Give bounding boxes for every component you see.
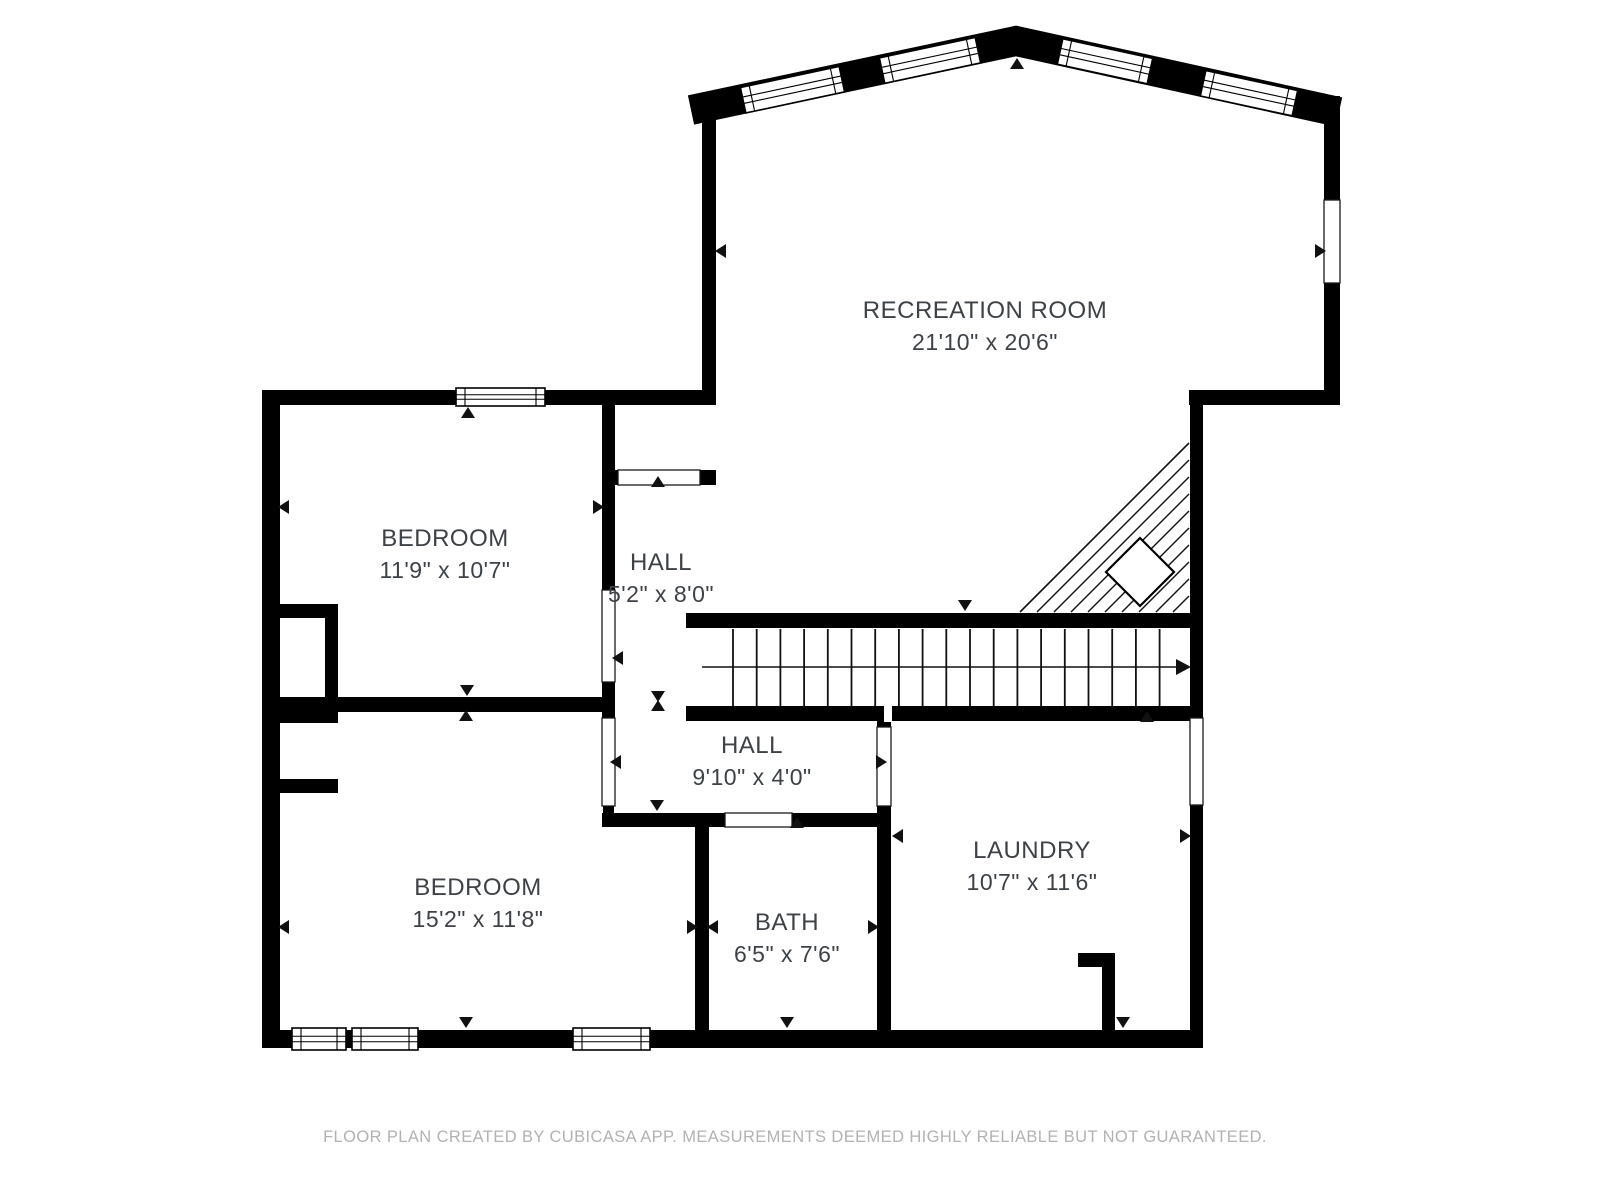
window-frame	[573, 1028, 650, 1050]
window	[292, 1028, 346, 1050]
measure-arrow	[1180, 829, 1191, 843]
window	[456, 388, 545, 406]
wall-recroom-left	[702, 96, 716, 405]
wall-bath-top-right	[792, 813, 891, 827]
window-frame	[292, 1028, 346, 1050]
measure-arrow	[958, 600, 972, 611]
measure-arrow	[715, 244, 726, 258]
measure-arrow	[461, 407, 475, 418]
hatch-line	[1054, 477, 1189, 612]
wall-recroom-bottom-right	[1189, 390, 1340, 405]
measure-arrow	[1010, 58, 1024, 69]
measure-arrow	[892, 829, 903, 843]
room-label-hall1: HALL	[630, 549, 692, 576]
wall-stairs-bottom	[686, 706, 1190, 721]
measure-arrow	[460, 685, 474, 696]
room-label-hall2: HALL	[721, 732, 783, 759]
window-frame	[456, 388, 545, 406]
window	[573, 1028, 650, 1050]
wall-stairs-top	[686, 613, 1190, 628]
winder-landing	[1106, 538, 1174, 606]
wall-hallcloset-stub-left	[602, 470, 618, 485]
room-label-bath: BATH	[755, 909, 819, 936]
room-dims-recreation: 21'10" x 20'6"	[912, 329, 1058, 355]
room-label-bedroom2: BEDROOM	[414, 874, 542, 901]
hatch-line	[1037, 460, 1189, 612]
wall-bath-left	[695, 827, 709, 1033]
floor-plan-canvas: RECREATION ROOM 21'10" x 20'6" BEDROOM 1…	[0, 0, 1600, 1200]
room-dims-hall2: 9'10" x 4'0"	[692, 764, 811, 790]
wall-bath-top-left	[602, 813, 725, 827]
room-label-laundry: LAUNDRY	[973, 837, 1091, 864]
room-dims-laundry: 10'7" x 11'6"	[967, 869, 1098, 895]
measure-arrow	[650, 800, 664, 811]
room-label-bedroom1: BEDROOM	[381, 525, 509, 552]
wall-closet1-stub	[272, 604, 338, 618]
stair-direction-arrowhead	[1176, 659, 1191, 675]
wall-hall-left-upper	[602, 405, 615, 590]
door-opening-recroom-exterior	[1324, 200, 1340, 283]
room-dims-bedroom1: 11'9" x 10'7"	[380, 557, 511, 583]
wall-closet2-stub	[272, 779, 338, 793]
wall-hallcloset-stub-right	[700, 470, 716, 485]
room-label-recreation: RECREATION ROOM	[863, 297, 1107, 324]
room-dims-hall1: 5'2" x 8'0"	[608, 581, 714, 607]
room-dims-bath: 6'5" x 7'6"	[734, 941, 840, 967]
wall-slit	[884, 705, 892, 722]
room-dims-bedroom2: 15'2" x 11'8"	[413, 906, 544, 932]
window-frame	[352, 1028, 418, 1050]
wall-laundry-stub-h	[1078, 953, 1115, 967]
footer-disclaimer: FLOOR PLAN CREATED BY CUBICASA APP. MEAS…	[323, 1128, 1267, 1146]
wall-laundry-stub-v	[1102, 967, 1115, 1033]
staircase	[702, 629, 1191, 706]
hatch-line	[1173, 596, 1189, 612]
measure-arrow	[780, 1017, 794, 1028]
measure-arrow	[651, 691, 665, 702]
floor-plan-page: RECREATION ROOM 21'10" x 20'6" BEDROOM 1…	[0, 0, 1600, 1200]
door-opening-bath	[725, 813, 792, 827]
measure-arrow	[1116, 1017, 1130, 1028]
window	[352, 1028, 418, 1050]
winder-stairs-hatch	[1020, 443, 1189, 612]
measure-arrow	[459, 1017, 473, 1028]
wall-closet1-side	[325, 618, 338, 697]
door-opening-laundry-exterior	[1190, 718, 1203, 805]
wall-divider-chunk	[272, 697, 338, 723]
